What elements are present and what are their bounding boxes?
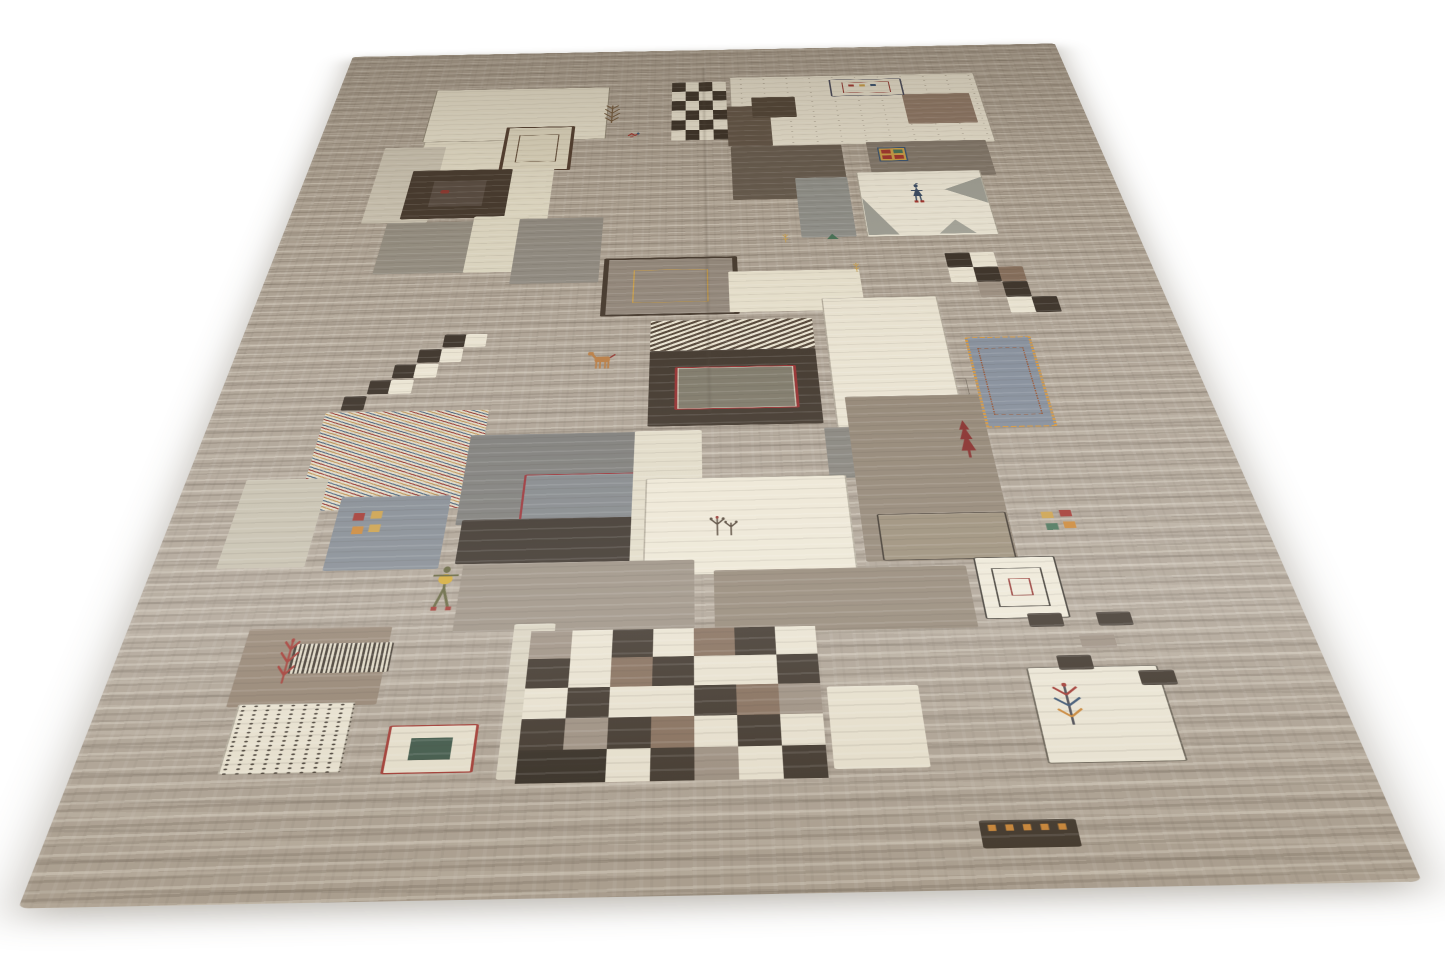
checkerboard-top-cell	[672, 110, 686, 120]
gray-blue-square-top-right	[795, 177, 857, 238]
checkerboard-top-cell	[672, 101, 686, 111]
red-mark-dark-square	[436, 188, 453, 196]
red-bordered-rect-center	[675, 365, 800, 410]
mini-rug-right	[973, 556, 1071, 619]
green-triangle	[825, 233, 839, 240]
checkerboard-top-cell	[712, 91, 726, 101]
black-cells-right-cell	[1079, 633, 1118, 648]
checkerboard-top-cell	[672, 92, 686, 102]
trail-cells-left-cell	[388, 380, 414, 394]
checkerboard-big-cell	[780, 713, 826, 745]
bordered-square-center-inner	[632, 269, 709, 303]
checkerboard-top-cell	[699, 100, 713, 110]
checkerboard-big-cell	[611, 629, 653, 658]
checkerboard-big-cell	[519, 718, 565, 751]
checkerboard-big-cell	[736, 684, 780, 715]
checkerboard-top-cell	[713, 110, 727, 120]
checkerboard-big-cell	[515, 750, 563, 784]
checkerboard-top-cell	[699, 120, 713, 130]
checkerboard-big-cell	[694, 655, 736, 685]
red-bird-motif	[626, 131, 640, 138]
checkerboard-big-cell	[563, 717, 609, 750]
mini-rug-top	[828, 78, 904, 96]
checkerboard-top-cell	[672, 83, 685, 92]
mini-rug-top-dashes	[846, 83, 880, 88]
tree-motif-top	[600, 103, 624, 124]
checkerboard-big-cell	[522, 688, 567, 719]
dark-chocolate-square-left	[400, 169, 513, 219]
stepped-cells-right-cell	[1031, 296, 1062, 312]
checkerboard-top-cell	[712, 82, 726, 91]
photo-scene	[0, 0, 1445, 963]
taupe-patch-mid-left	[453, 560, 695, 633]
checkerboard-top-cell	[686, 101, 700, 111]
checkerboard-big-cell	[565, 687, 610, 718]
taupe-block-bottom	[714, 565, 978, 632]
checkerboard-big-cell	[610, 657, 653, 687]
checkerboard-big-cell	[694, 715, 738, 748]
checkerboard-top-cell	[685, 130, 699, 140]
stepped-cells-right-cell	[969, 252, 998, 267]
checkerboard-big-cell	[651, 685, 694, 716]
checkerboard-big-cell	[694, 627, 735, 656]
trail-cells-left-cell	[464, 334, 488, 347]
checkerboard-big-cell	[560, 749, 607, 783]
checkerboard-big-cell	[734, 626, 776, 655]
stepped-cells-right-cell	[948, 267, 977, 282]
checkerboard-top-cell	[686, 91, 700, 101]
bordered-square-top-left-inner	[515, 135, 560, 163]
checkerboard-big-cell	[694, 685, 737, 716]
stepped-cells-right-cell	[945, 252, 973, 267]
checkerboard-big-cell	[738, 746, 784, 780]
checkerboard-big-cell	[570, 630, 613, 659]
checkerboard-top	[671, 82, 728, 141]
trail-cells-left-cell	[340, 396, 367, 411]
black-cells-right-cell	[1027, 613, 1065, 627]
checkerboard-big-cell	[737, 714, 782, 747]
trail-cells-left-cell	[417, 349, 442, 363]
bordered-square-center	[600, 256, 740, 316]
mini-rug-bottom-inner	[408, 737, 453, 760]
horse-motif	[586, 351, 618, 370]
checkerboard-big-cell	[650, 747, 695, 781]
dotted-square	[217, 702, 356, 775]
brown-square-top-right	[902, 93, 978, 124]
gray-angular-shapes	[858, 172, 997, 235]
checkerboard-top-cell	[686, 110, 700, 120]
bordered-square-top-left	[498, 126, 575, 171]
slate-square-mid-left	[509, 217, 604, 284]
checkerboard-big-cell	[568, 658, 612, 688]
checkerboard-big-cell	[778, 683, 823, 714]
checkerboard-big-cell	[650, 716, 694, 749]
checkerboard-big-cell	[525, 658, 570, 688]
blue-flower-square	[322, 495, 452, 571]
checkerboard-top-cell	[700, 130, 714, 140]
line-rect-taupe	[876, 512, 1017, 561]
checkerboard-top-cell	[713, 100, 727, 110]
trail-cells-left-cell	[413, 364, 438, 378]
checkerboard-big-cell	[782, 745, 829, 779]
stepped-cells-right-cell	[1002, 281, 1032, 297]
red-bordered-rect-slate	[519, 472, 637, 522]
checkerboard-big	[515, 626, 829, 784]
checkerboard-top-cell	[713, 119, 727, 129]
mini-rug-right-inner-2	[1008, 578, 1034, 595]
checkerboard-big-cell	[605, 748, 651, 782]
gold-bordered-gray-rect-inner	[977, 347, 1043, 415]
checkerboard-big-cell	[735, 655, 778, 685]
rug	[18, 43, 1422, 908]
checkerboard-top-cell	[699, 91, 713, 101]
checkerboard-top-cell	[671, 130, 685, 140]
trail-cells-left-cell	[439, 349, 464, 363]
gold-sprig-2	[848, 260, 863, 272]
flower-cluster-left	[345, 509, 389, 538]
checkerboard-big-cell	[776, 654, 820, 684]
checkerboard-top-cell	[686, 120, 700, 130]
checkerboard-big-cell	[608, 686, 652, 717]
checkerboard-big-cell	[775, 626, 818, 655]
checkerboard-big-cell	[529, 630, 573, 659]
orange-ticks-bottom	[983, 820, 1074, 834]
zigzag-band	[650, 318, 815, 351]
camera-tilt-wrapper	[0, 0, 1445, 963]
checkerboard-top-cell	[672, 120, 686, 130]
trail-cells-left-cell	[442, 334, 466, 347]
checkerboard-big-cell	[694, 747, 739, 781]
checkerboard-top-cell	[699, 110, 713, 120]
stepped-cells-right-cell	[998, 266, 1028, 281]
black-cells-right-cell	[1095, 611, 1133, 625]
checkerboard-big-cell	[652, 656, 694, 686]
checkerboard-top-cell	[714, 129, 728, 139]
black-cells-right-cell	[1138, 670, 1178, 686]
checkerboard-big-cell	[653, 628, 694, 657]
mini-rug-bottom	[380, 724, 479, 775]
gold-sprig	[778, 232, 792, 244]
checkerboard-big-cell	[606, 717, 651, 750]
ivory-patch-bottom	[827, 685, 931, 769]
checkerboard-top-cell	[686, 82, 699, 91]
black-cells-right-cell	[1056, 655, 1095, 670]
dark-rect-top-right	[751, 97, 796, 118]
plant-motif-ivory	[705, 509, 741, 537]
flower-cluster-right	[1037, 508, 1084, 533]
pale-patch-left-mid	[216, 478, 329, 568]
checkerboard-top-cell	[699, 82, 713, 91]
window-motif	[877, 147, 908, 161]
